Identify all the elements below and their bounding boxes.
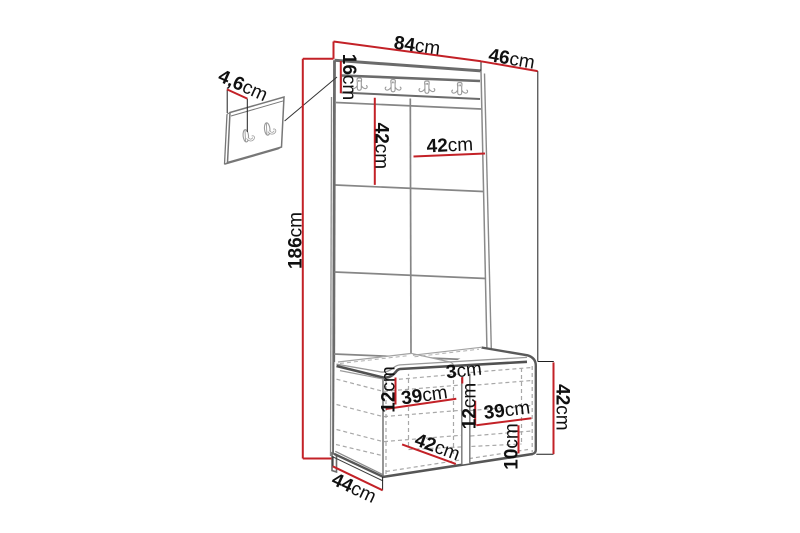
svg-text:12cm: 12cm [379, 366, 400, 412]
svg-text:12cm: 12cm [460, 383, 481, 429]
svg-text:3cm: 3cm [445, 359, 483, 384]
svg-text:16cm: 16cm [338, 54, 359, 100]
svg-text:42cm: 42cm [552, 384, 573, 430]
svg-text:186cm: 186cm [285, 212, 306, 269]
svg-text:10cm: 10cm [501, 423, 522, 469]
svg-text:42cm: 42cm [371, 123, 392, 169]
svg-text:42cm: 42cm [426, 134, 473, 157]
